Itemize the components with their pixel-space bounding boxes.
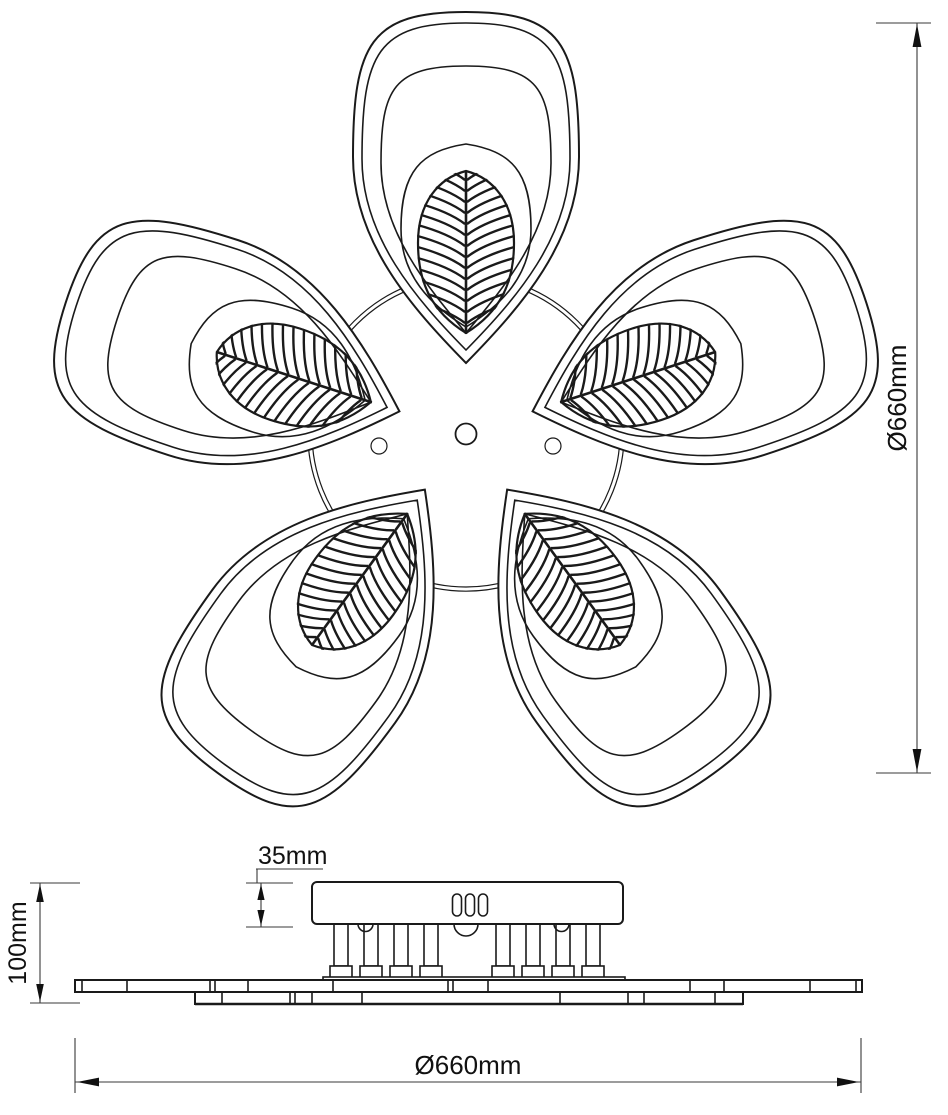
arrow-down-icon (913, 749, 922, 772)
ring-clip-bump (371, 438, 387, 454)
dimension-fixture-height: 100mm (4, 883, 80, 1003)
arrow-right-icon (837, 1078, 859, 1087)
arrow-up-icon (257, 884, 264, 900)
dim-label-fixture-height: 100mm (4, 901, 32, 984)
arrow-up-icon (913, 24, 922, 47)
flower-top-view (31, 12, 902, 840)
fixture-side-view (75, 882, 862, 1004)
arrow-up-icon (36, 884, 44, 902)
panel-plate-lower (195, 992, 743, 1004)
mounting-post (586, 924, 600, 966)
mounting-post (526, 924, 540, 966)
dimension-diameter-right: Ø660mm (876, 23, 931, 773)
dimension-diameter-bottom: Ø660mm (75, 1038, 861, 1093)
dim-label-diameter-bottom: Ø660mm (415, 1050, 522, 1080)
mounting-posts-group (330, 924, 604, 979)
center-mounting-hole (456, 424, 477, 445)
ring-clip-bump (545, 438, 561, 454)
technical-drawing-page: Ø660mm Ø660mm 100mm 35mm (0, 0, 948, 1115)
panel-plate-upper (75, 980, 862, 992)
canopy-box (312, 882, 623, 924)
panel-plates-group (75, 980, 862, 1004)
mounting-post (496, 924, 510, 966)
mounting-post (334, 924, 348, 966)
arrow-down-icon (257, 910, 264, 926)
arrow-left-icon (77, 1078, 99, 1087)
mounting-post (424, 924, 438, 966)
dim-label-canopy-height: 35mm (258, 842, 327, 870)
petal (353, 12, 579, 363)
mounting-post (394, 924, 408, 966)
arrow-down-icon (36, 984, 44, 1002)
dim-label-diameter-right: Ø660mm (882, 345, 912, 452)
mounting-post (364, 924, 378, 966)
ceiling-light-dimension-drawing: Ø660mm Ø660mm 100mm 35mm (0, 0, 948, 1115)
